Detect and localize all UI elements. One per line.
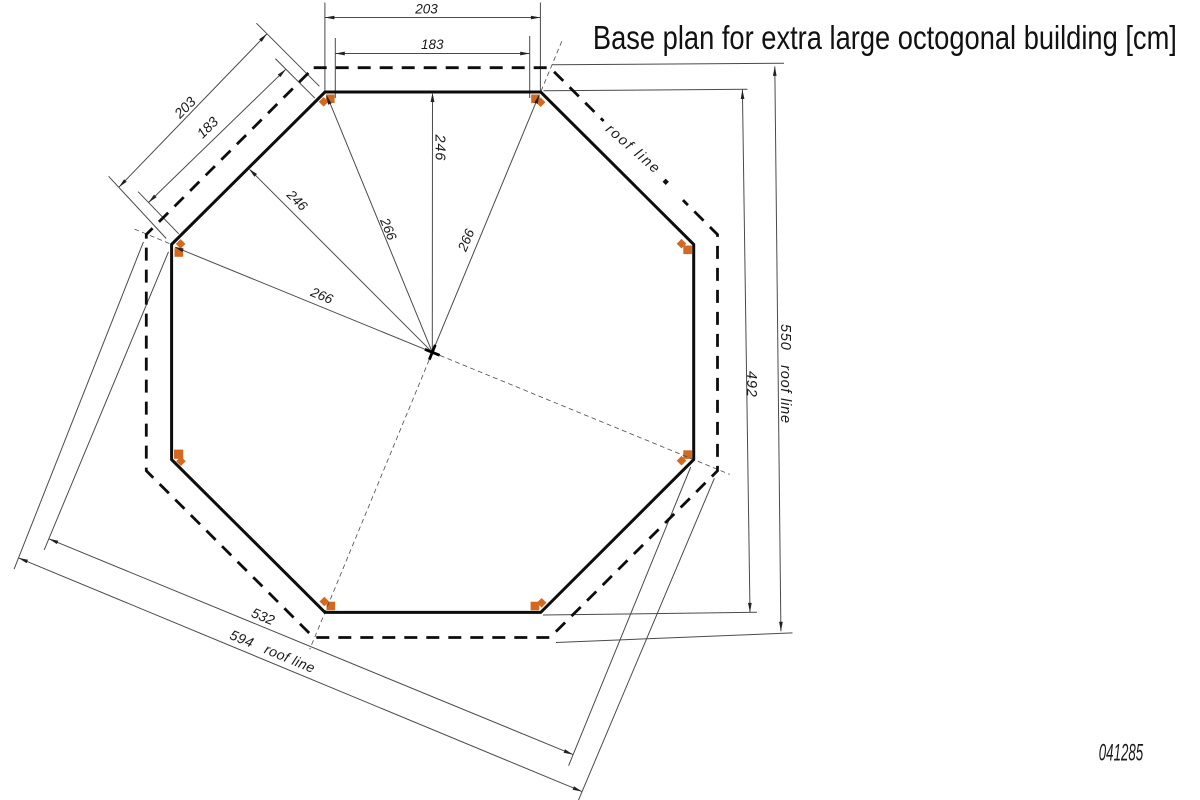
svg-text:Base plan for extra large octo: Base plan for extra large octogonal buil… bbox=[593, 19, 1177, 56]
svg-text:266: 266 bbox=[308, 284, 336, 307]
svg-text:594 roof line: 594 roof line bbox=[228, 626, 318, 676]
svg-text:532: 532 bbox=[249, 604, 277, 628]
svg-text:266: 266 bbox=[455, 226, 478, 254]
svg-text:203: 203 bbox=[414, 2, 438, 17]
svg-text:041285: 041285 bbox=[1099, 740, 1144, 767]
svg-text:266: 266 bbox=[377, 215, 400, 243]
svg-text:183: 183 bbox=[421, 37, 444, 52]
svg-text:203: 203 bbox=[170, 93, 199, 122]
svg-text:492: 492 bbox=[743, 371, 759, 398]
svg-text:550 roof line: 550 roof line bbox=[777, 324, 793, 424]
svg-text:roof line: roof line bbox=[602, 121, 664, 178]
svg-text:246: 246 bbox=[283, 186, 311, 214]
svg-text:183: 183 bbox=[193, 113, 221, 141]
svg-text:246: 246 bbox=[432, 134, 448, 162]
